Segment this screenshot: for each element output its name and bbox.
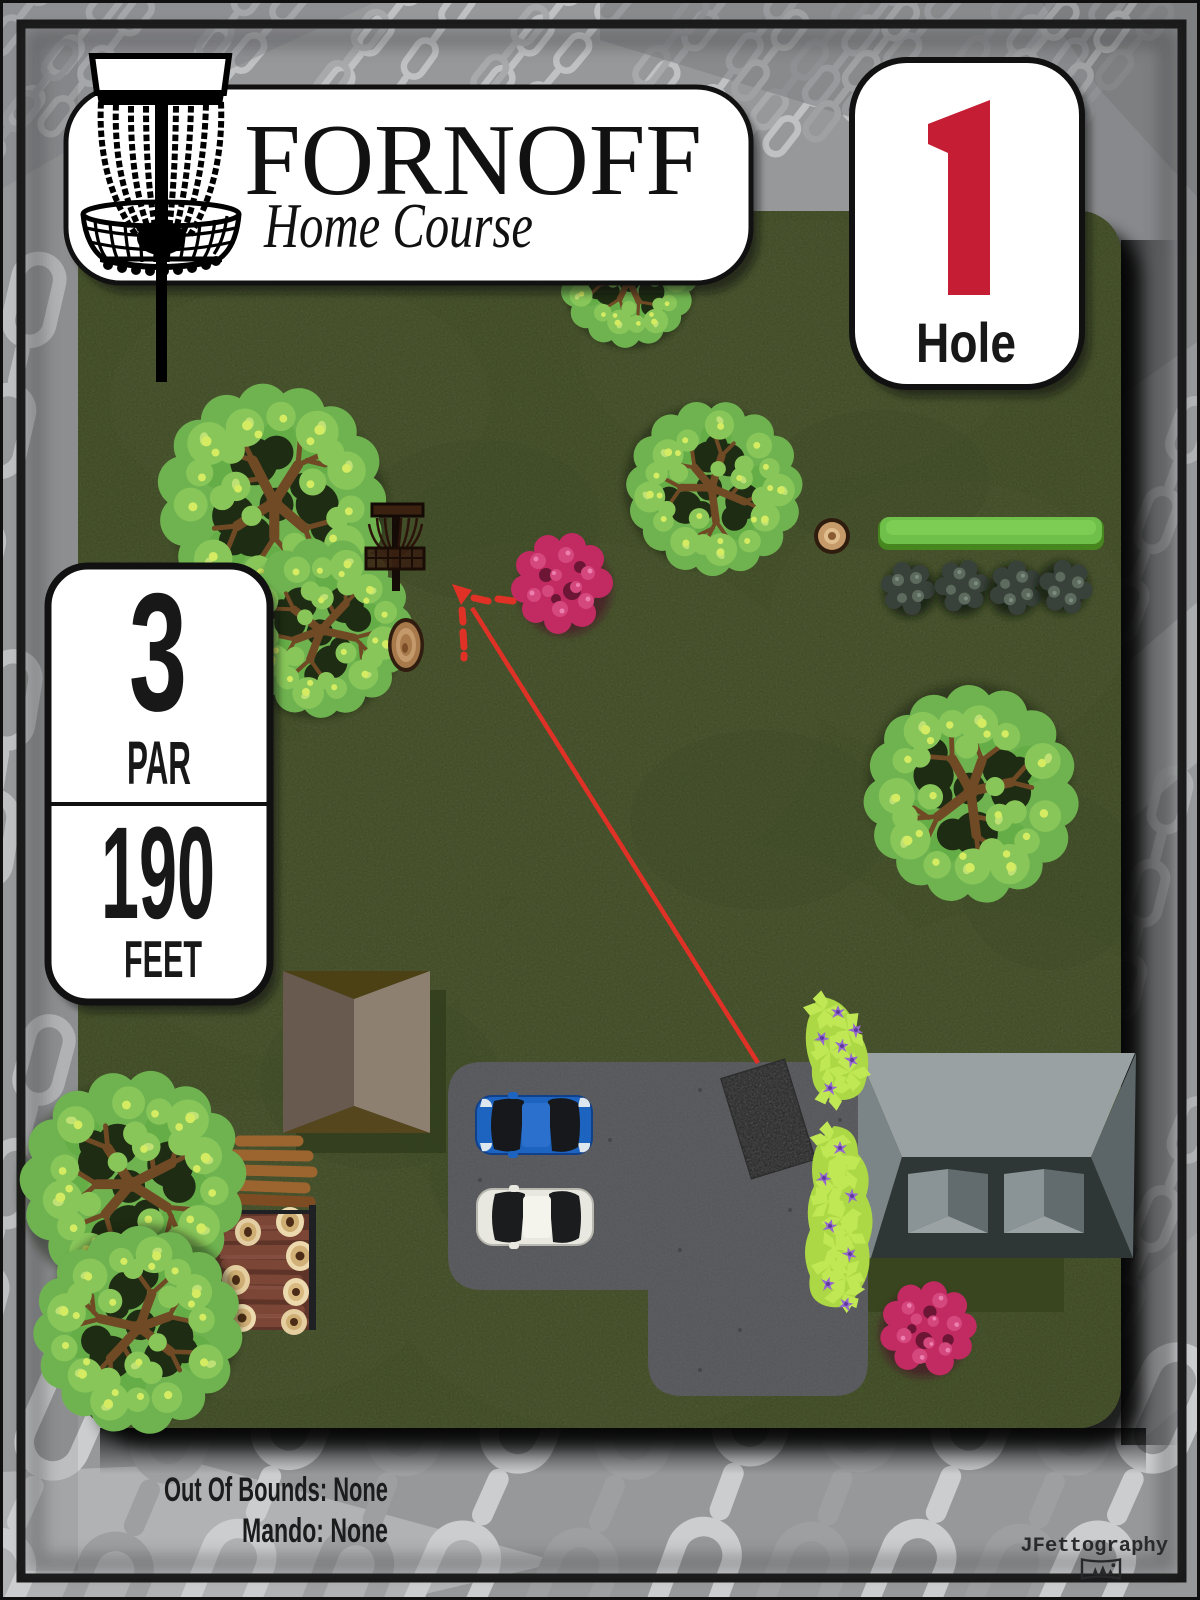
svg-text:3: 3 [129, 558, 187, 746]
svg-text:Mando: None: Mando: None [242, 1512, 388, 1550]
svg-text:JFettography: JFettography [1020, 1535, 1168, 1558]
svg-text:FEET: FEET [124, 931, 202, 989]
svg-text:Out Of Bounds: None: Out Of Bounds: None [164, 1471, 388, 1509]
svg-text:Hole: Hole [916, 311, 1016, 374]
svg-text:190: 190 [101, 799, 215, 946]
svg-text:PAR: PAR [127, 729, 191, 797]
svg-text:Home Course: Home Course [263, 190, 533, 261]
